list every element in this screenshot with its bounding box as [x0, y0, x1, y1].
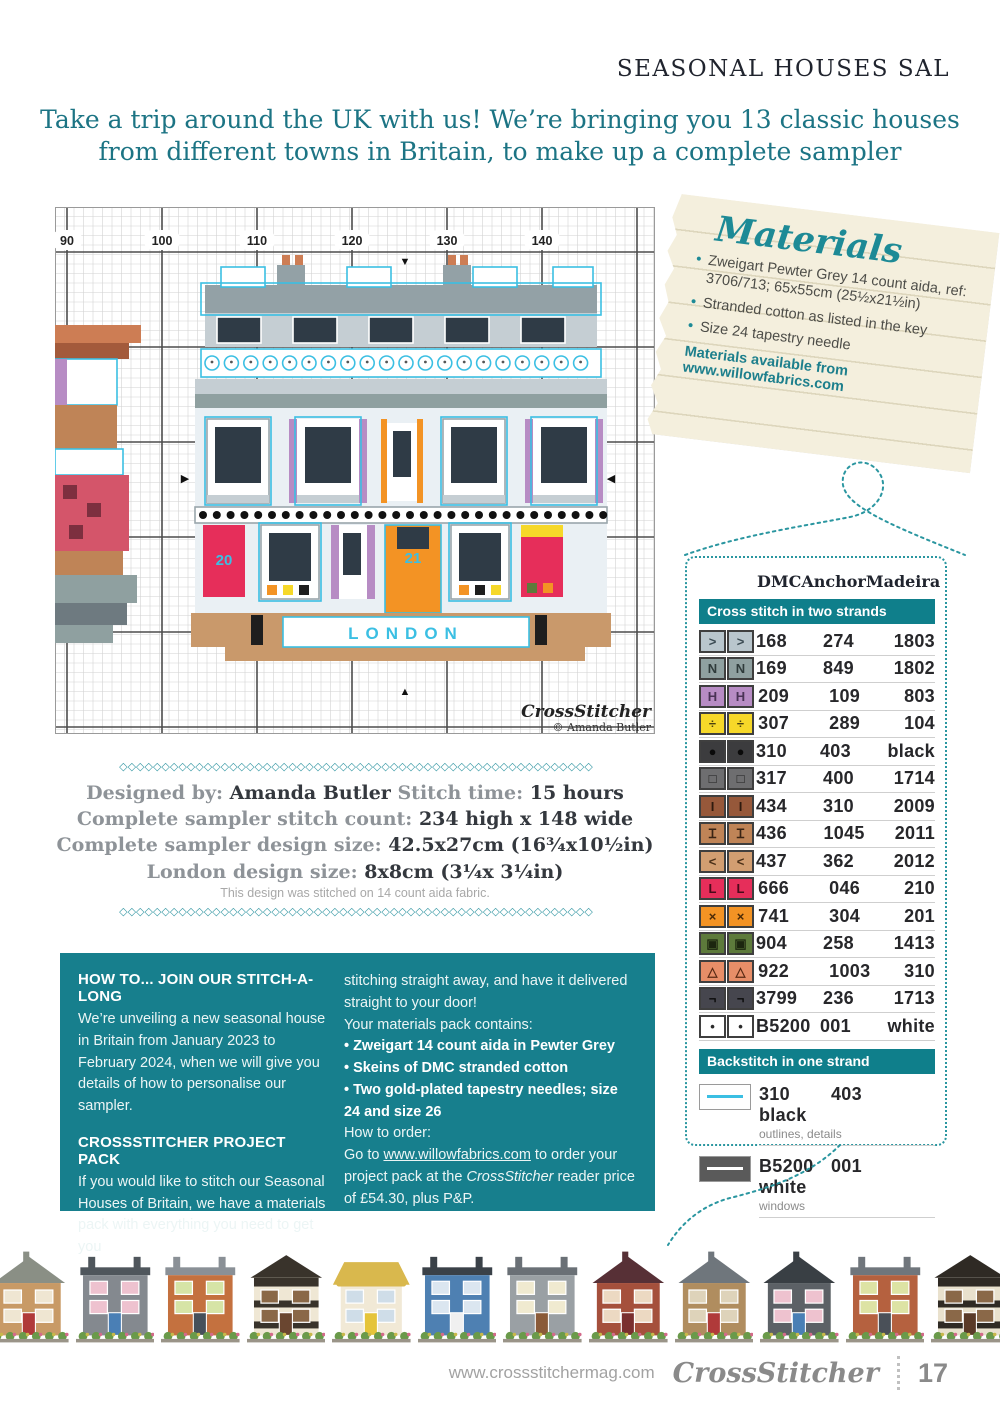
cross-stitch-chart: 2021LONDON▼▲▶◀90100110120130140CrossStit…: [55, 207, 655, 734]
order-pre: Go to: [344, 1147, 384, 1163]
order-brand: CrossStitcher: [466, 1169, 553, 1185]
chart-watermark-credit: © Amanda Butler: [553, 721, 652, 734]
key-value-madeira: 201: [904, 906, 935, 927]
svg-text:21: 21: [405, 550, 422, 567]
key-value-dmc: 3799: [754, 988, 823, 1009]
key-col-dmc: DMC: [757, 572, 801, 591]
key-value-madeira: 1714: [894, 768, 935, 789]
backstitch-value-anchor: 001: [831, 1156, 907, 1177]
key-value-anchor: 001: [820, 1016, 888, 1037]
intro-line-2: from different towns in Britain, to make…: [99, 137, 902, 166]
key-row: >>1682741803: [699, 628, 935, 656]
key-row: <<4373622012: [699, 848, 935, 876]
design-details: Designed by: Amanda Butler Stitch time: …: [55, 780, 655, 885]
bullet-icon: •: [693, 251, 703, 287]
key-value-dmc: 168: [754, 631, 823, 652]
key-value-madeira: 803: [904, 686, 935, 707]
key-value-dmc: 741: [756, 906, 829, 927]
stitch-symbol-swatch: HH: [699, 685, 756, 708]
key-value-dmc: 209: [756, 686, 829, 707]
key-value-dmc: 434: [754, 796, 823, 817]
page-footer: www.crossstitchermag.com CrossStitcher 1…: [449, 1356, 948, 1390]
diamond-divider-bottom: ◇◇◇◇◇◇◇◇◇◇◇◇◇◇◇◇◇◇◇◇◇◇◇◇◇◇◇◇◇◇◇◇◇◇◇◇◇◇◇◇…: [58, 905, 654, 918]
key-column-headers: DMC Anchor Madeira: [757, 572, 935, 591]
key-value-anchor: 109: [829, 686, 904, 707]
details-line-2: Complete sampler stitch count: 234 high …: [55, 806, 655, 832]
svg-text:▲: ▲: [400, 686, 411, 698]
mini-house: [161, 1247, 240, 1347]
key-value-dmc: 666: [756, 878, 829, 899]
pack-intro: stitching straight away, and have it del…: [344, 971, 635, 1015]
backstitch-value-dmc: B5200: [759, 1156, 831, 1177]
backstitch-usage-note: windows: [759, 1199, 935, 1213]
key-row: ꞮꞮ43610452011: [699, 821, 935, 849]
mini-house: [760, 1247, 839, 1347]
key-value-madeira: 2011: [895, 823, 935, 844]
how-to-column-2: stitching straight away, and have it del…: [344, 971, 635, 1197]
mini-house: [846, 1247, 925, 1347]
mini-house: [0, 1247, 69, 1347]
designed-by-value: Amanda Butler: [230, 782, 391, 804]
key-section-cross-stitch: Cross stitch in two strands: [699, 599, 935, 624]
svg-text:140: 140: [532, 234, 553, 248]
mini-house: [247, 1247, 326, 1347]
key-row: △△9221003310: [699, 958, 935, 986]
key-value-dmc: 922: [756, 961, 829, 982]
key-value-anchor: 258: [823, 933, 894, 954]
key-value-anchor: 310: [823, 796, 894, 817]
chart-watermark-logo: CrossStitcher: [521, 702, 652, 722]
svg-text:100: 100: [152, 234, 173, 248]
stitch-symbol-swatch: ××: [699, 905, 756, 928]
details-line-4: London design size: 8x8cm (3¼x 3¼in): [55, 859, 655, 885]
key-value-anchor: 400: [823, 768, 894, 789]
key-value-madeira: 1413: [894, 933, 935, 954]
pack-list-item: Two gold-plated tapestry needles; size 2…: [344, 1080, 635, 1124]
backstitch-value-madeira: white: [759, 1177, 807, 1197]
key-row: ××741304201: [699, 903, 935, 931]
intro-line-1: Take a trip around the UK with us! We’re…: [40, 105, 960, 134]
key-row: ●●310403black: [699, 738, 935, 766]
key-value-anchor: 274: [823, 631, 894, 652]
diamond-divider-top: ◇◇◇◇◇◇◇◇◇◇◇◇◇◇◇◇◇◇◇◇◇◇◇◇◇◇◇◇◇◇◇◇◇◇◇◇◇◇◇◇…: [58, 760, 654, 773]
design-size-label: Complete sampler design size:: [57, 834, 382, 856]
key-value-madeira: 2009: [894, 796, 935, 817]
stitch-symbol-swatch: >>: [699, 630, 754, 653]
key-value-anchor: 236: [823, 988, 894, 1009]
key-col-madeira: Madeira: [866, 572, 940, 591]
key-row: □□3174001714: [699, 766, 935, 794]
svg-text:20: 20: [216, 552, 233, 569]
key-value-madeira: 1802: [894, 658, 935, 679]
bullet-icon: •: [687, 318, 694, 336]
page-number: 17: [918, 1358, 948, 1389]
stitch-symbol-swatch: NN: [699, 657, 754, 680]
stitch-symbol-swatch: △△: [699, 960, 756, 983]
svg-text:110: 110: [247, 234, 267, 248]
backstitch-value-madeira: black: [759, 1105, 807, 1125]
pack-contains-label: Your materials pack contains:: [344, 1015, 635, 1037]
key-value-madeira: white: [887, 1016, 935, 1037]
svg-text:120: 120: [342, 234, 363, 248]
stitch-symbol-swatch: II: [699, 795, 754, 818]
svg-text:130: 130: [437, 234, 458, 248]
willowfabrics-link[interactable]: www.willowfabrics.com: [383, 1147, 530, 1163]
stitch-symbol-swatch: □□: [699, 767, 754, 790]
page-title: SEASONAL HOUSES SAL: [617, 56, 950, 82]
key-value-anchor: 1003: [829, 961, 904, 982]
color-key-panel: DMC Anchor Madeira Cross stitch in two s…: [685, 556, 947, 1146]
pack-list-item: Zweigart 14 count aida in Pewter Grey: [344, 1036, 635, 1058]
key-value-anchor: 046: [829, 878, 904, 899]
stitch-time-label: Stitch time:: [397, 782, 523, 804]
design-size-value: 42.5x27cm (16¾x10½in): [388, 834, 653, 856]
key-value-madeira: black: [887, 741, 935, 762]
mini-house: [332, 1247, 411, 1347]
key-row: ••B5200001white: [699, 1013, 935, 1041]
key-value-dmc: 437: [754, 851, 823, 872]
key-value-dmc: 436: [754, 823, 824, 844]
key-value-madeira: 1713: [894, 988, 935, 1009]
backstitch-row: 310403blackoutlines, details: [699, 1084, 935, 1146]
key-value-dmc: 904: [754, 933, 823, 954]
key-value-madeira: 2012: [894, 851, 935, 872]
key-row: HH209109803: [699, 683, 935, 711]
chart-caption-london: LONDON: [348, 624, 464, 643]
mini-house: [931, 1247, 1000, 1347]
key-value-anchor: 403: [820, 741, 888, 762]
svg-text:▼: ▼: [400, 256, 411, 268]
london-size-value: 8x8cm (3¼x 3¼in): [364, 861, 563, 883]
stitch-symbol-swatch: ¬¬: [699, 987, 754, 1010]
london-size-label: London design size:: [147, 861, 358, 883]
key-value-anchor: 362: [823, 851, 894, 872]
key-value-anchor: 849: [823, 658, 894, 679]
how-to-paragraph: We’re unveiling a new seasonal house in …: [78, 1009, 326, 1118]
details-line-1: Designed by: Amanda Butler Stitch time: …: [55, 780, 655, 806]
mini-house: [503, 1247, 582, 1347]
thread-loop-decoration: [680, 455, 970, 561]
project-pack-heading: CROSSSTITCHER PROJECT PACK: [78, 1134, 326, 1168]
mini-house: [675, 1247, 754, 1347]
pack-list-item: Skeins of DMC stranded cotton: [344, 1058, 635, 1080]
key-value-dmc: 307: [756, 713, 829, 734]
stitch-symbol-swatch: ▣▣: [699, 932, 754, 955]
mini-house: [76, 1247, 155, 1347]
how-to-heading: HOW TO... JOIN OUR STITCH-A-LONG: [78, 971, 326, 1005]
key-value-madeira: 310: [904, 961, 935, 982]
houses-border-strip: [0, 1243, 1000, 1347]
backstitch-usage-note: outlines, details: [759, 1127, 935, 1141]
footer-divider: [897, 1356, 900, 1390]
details-line-3: Complete sampler design size: 42.5x27cm …: [55, 832, 655, 858]
key-row: NN1698491802: [699, 656, 935, 684]
mini-house: [418, 1247, 497, 1347]
key-value-madeira: 1803: [894, 631, 935, 652]
stitch-symbol-swatch: ••: [699, 1015, 754, 1038]
key-value-anchor: 1045: [824, 823, 895, 844]
magazine-url[interactable]: www.crossstitchermag.com: [449, 1363, 655, 1383]
bullet-icon: •: [690, 294, 697, 312]
key-value-anchor: 289: [829, 713, 904, 734]
stitch-symbol-swatch: LL: [699, 877, 756, 900]
backstitch-value-anchor: 403: [831, 1084, 907, 1105]
chart-canvas: 2021LONDON▼▲▶◀90100110120130140CrossStit…: [55, 207, 655, 734]
key-value-dmc: 317: [754, 768, 823, 789]
key-value-dmc: 310: [754, 741, 820, 762]
order-label: How to order:: [344, 1123, 635, 1145]
key-row: ÷÷307289104: [699, 711, 935, 739]
stitch-symbol-swatch: ●●: [699, 740, 754, 763]
key-row: II4343102009: [699, 793, 935, 821]
svg-text:90: 90: [60, 234, 74, 248]
stitch-symbol-swatch: ꞮꞮ: [699, 822, 754, 845]
backstitch-value-dmc: 310: [759, 1084, 831, 1105]
key-value-dmc: B5200: [754, 1016, 820, 1037]
key-value-dmc: 169: [754, 658, 823, 679]
stitch-count-label: Complete sampler stitch count:: [77, 808, 412, 830]
key-backstitch-rows: 310403blackoutlines, detailsB5200001whit…: [699, 1084, 935, 1218]
pack-contents-list: Zweigart 14 count aida in Pewter GreySke…: [344, 1036, 635, 1123]
key-row: ¬¬37992361713: [699, 986, 935, 1014]
svg-text:▶: ▶: [181, 473, 190, 485]
how-to-column-1: HOW TO... JOIN OUR STITCH-A-LONG We’re u…: [78, 971, 326, 1197]
key-value-anchor: 304: [829, 906, 904, 927]
backstitch-row: B5200001whitewindows: [699, 1156, 935, 1218]
svg-text:◀: ◀: [607, 473, 616, 485]
stitch-time-value: 15 hours: [530, 782, 624, 804]
crossstitcher-logo: CrossStitcher: [673, 1358, 879, 1389]
key-section-backstitch: Backstitch in one strand: [699, 1049, 935, 1074]
stitch-symbol-swatch: <<: [699, 850, 754, 873]
stitch-count-value: 234 high x 148 wide: [419, 808, 633, 830]
order-instructions: Go to www.willowfabrics.com to order you…: [344, 1145, 635, 1210]
how-to-box: HOW TO... JOIN OUR STITCH-A-LONG We’re u…: [60, 953, 655, 1211]
key-rows: >>1682741803NN1698491802HH209109803÷÷307…: [699, 628, 935, 1041]
intro-text: Take a trip around the UK with us! We’re…: [0, 104, 1000, 168]
key-value-madeira: 104: [904, 713, 935, 734]
fabric-note: This design was stitched on 14 count aid…: [55, 886, 655, 900]
key-col-anchor: Anchor: [801, 572, 866, 591]
mini-house: [589, 1247, 668, 1347]
key-row: LL666046210: [699, 876, 935, 904]
backstitch-swatch: [699, 1084, 751, 1110]
key-row: ▣▣9042581413: [699, 931, 935, 959]
materials-note-card: Materials •Zweigart Pewter Grey 14 count…: [642, 193, 999, 473]
key-value-madeira: 210: [904, 878, 935, 899]
stitch-symbol-swatch: ÷÷: [699, 712, 756, 735]
backstitch-swatch: [699, 1156, 751, 1182]
designed-by-label: Designed by:: [86, 782, 223, 804]
